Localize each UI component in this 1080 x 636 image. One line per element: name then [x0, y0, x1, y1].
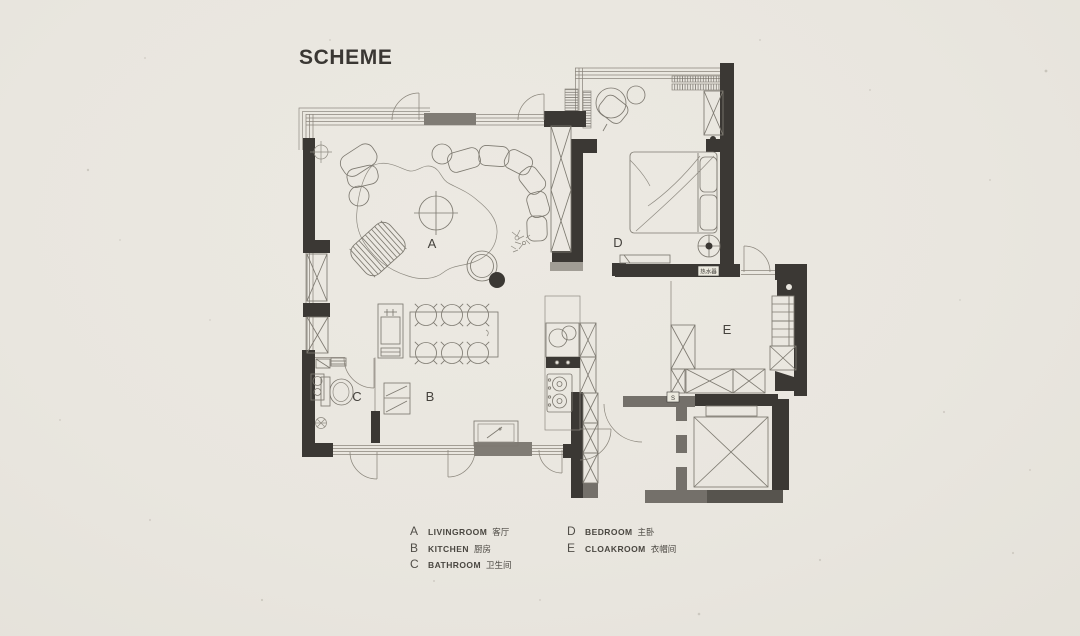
legend-name: BEDROOM — [585, 527, 633, 537]
legend-column-2: D BEDROOM 主卧 E CLOAKROOM 衣帽间 — [567, 524, 676, 557]
water-heater-label: 热水器 — [700, 268, 717, 276]
legend-name: BATHROOM — [428, 560, 481, 570]
legend-item-livingroom: A LIVINGROOM 客厅 — [410, 524, 512, 541]
legend-name-cn: 厨房 — [474, 543, 491, 555]
dining-table — [410, 312, 498, 357]
stove — [547, 374, 572, 412]
legend-letter: D — [567, 524, 585, 538]
legend-item-bathroom: C BATHROOM 卫生间 — [410, 557, 512, 574]
elevator-shaft — [694, 406, 768, 487]
floor-drain — [316, 418, 327, 429]
walls — [302, 63, 807, 503]
floor-plan-svg: 热水器 S A B C D E — [0, 0, 1080, 636]
legend-name-cn: 卫生间 — [486, 559, 512, 571]
lounge-chair — [347, 218, 410, 280]
bed — [630, 152, 717, 233]
legend-name-cn: 客厅 — [492, 526, 509, 538]
room-label-kitchen: B — [426, 389, 435, 404]
room-label-bedroom: D — [613, 235, 622, 250]
legend-letter: A — [410, 524, 428, 538]
legend-name-cn: 衣帽间 — [651, 543, 677, 555]
legend-name: LIVINGROOM — [428, 527, 487, 537]
island-sink — [378, 304, 403, 358]
sofa — [446, 145, 551, 241]
ceiling-fan-symbol — [698, 235, 720, 257]
legend-item-cloakroom: E CLOAKROOM 衣帽间 — [567, 541, 676, 558]
kitchen-furniture — [378, 296, 580, 446]
floor-lamp — [489, 272, 505, 288]
legend-name: CLOAKROOM — [585, 544, 646, 554]
switch-label: S — [671, 396, 675, 402]
legend-column-1: A LIVINGROOM 客厅 B KITCHEN 厨房 C BATHROOM … — [410, 524, 512, 574]
shoe-cabinet — [474, 421, 518, 446]
legend-name: KITCHEN — [428, 544, 469, 554]
radiators — [565, 76, 721, 128]
toilet — [321, 377, 353, 406]
legend-item-bedroom: D BEDROOM 主卧 — [567, 524, 676, 541]
legend-letter: B — [410, 541, 428, 555]
livingroom-furniture — [310, 140, 551, 288]
bedroom-chair — [596, 86, 645, 131]
legend-name-cn: 主卧 — [638, 526, 655, 538]
bath-side-cabinet — [384, 383, 410, 414]
room-label-livingroom: A — [428, 236, 437, 251]
legend-item-kitchen: B KITCHEN 厨房 — [410, 541, 512, 558]
legend-letter: C — [410, 557, 428, 571]
room-labels: A B C D E — [352, 235, 731, 404]
bathroom-fixtures — [311, 358, 353, 429]
room-label-bathroom: C — [352, 389, 361, 404]
legend-letter: E — [567, 541, 585, 555]
page: { "title": "SCHEME", "colors": { "backgr… — [0, 0, 1080, 636]
room-label-cloakroom: E — [723, 322, 732, 337]
